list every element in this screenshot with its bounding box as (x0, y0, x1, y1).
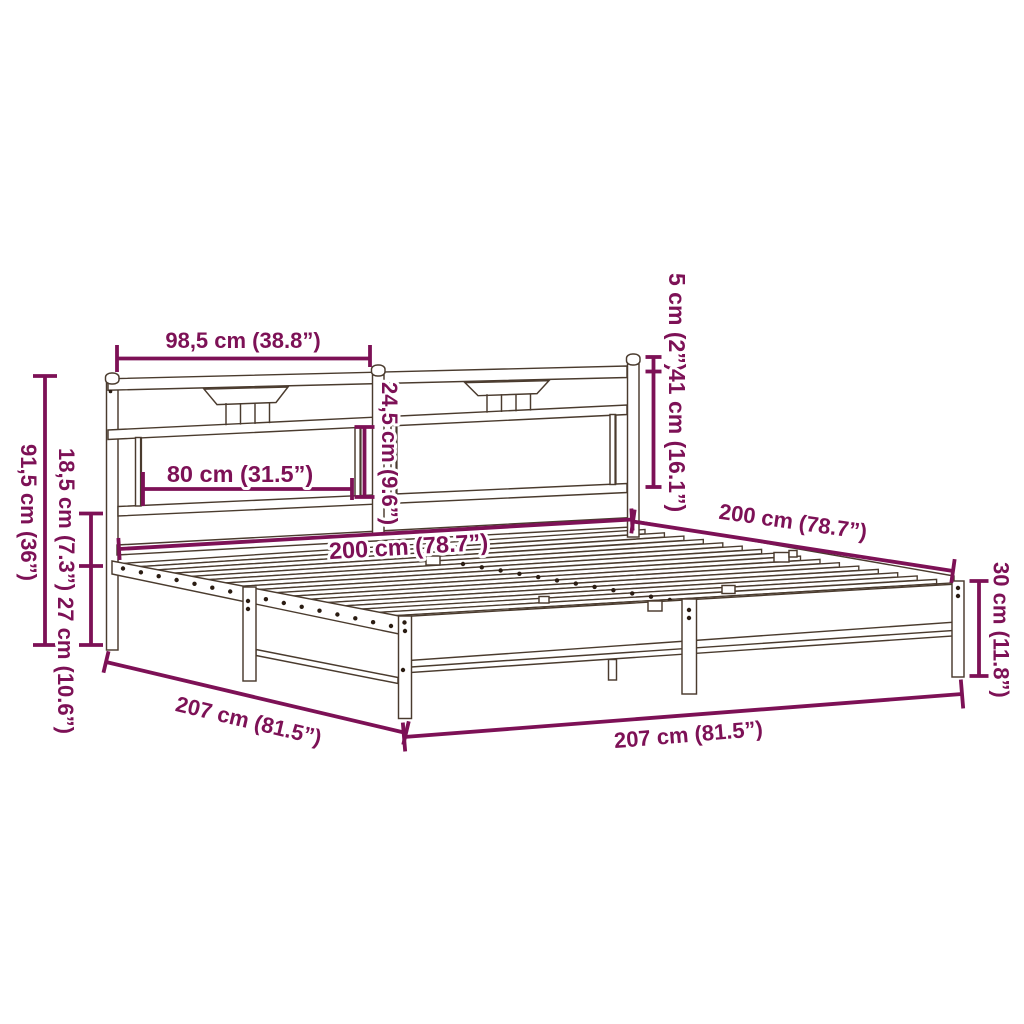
svg-text:18,5 cm (7.3”): 18,5 cm (7.3”) (54, 448, 79, 591)
svg-text:5 cm (2”): 5 cm (2”) (664, 273, 690, 371)
svg-text:91,5 cm (36”): 91,5 cm (36”) (16, 444, 41, 581)
svg-text:80 cm (31.5”): 80 cm (31.5”) (167, 461, 313, 487)
svg-text:41 cm (16.1”): 41 cm (16.1”) (664, 369, 690, 512)
svg-text:27 cm (10.6”): 27 cm (10.6”) (53, 597, 78, 734)
svg-text:98,5 cm (38.8”): 98,5 cm (38.8”) (165, 328, 320, 353)
svg-text:24,5 cm (9.6”): 24,5 cm (9.6”) (377, 382, 402, 525)
svg-text:30 cm (11.8”): 30 cm (11.8”) (989, 562, 1014, 698)
